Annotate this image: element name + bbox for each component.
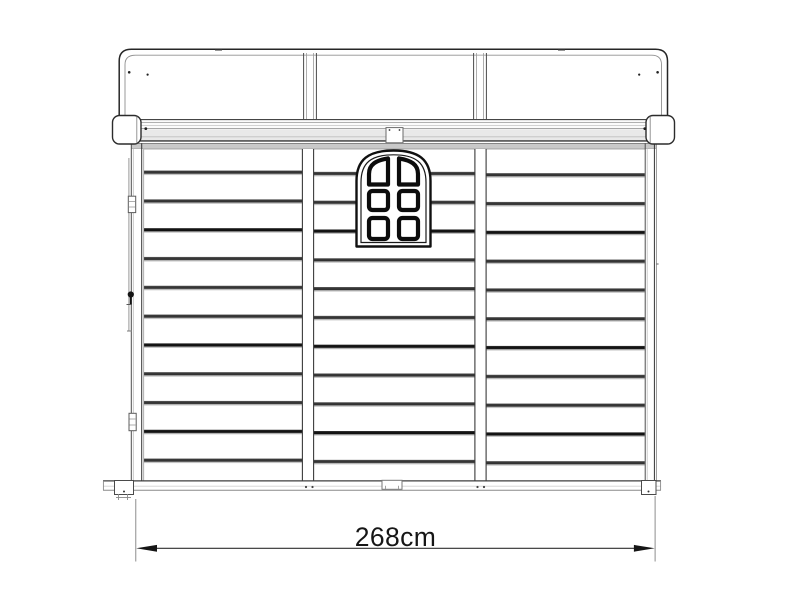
dimension-label: 268cm bbox=[355, 522, 437, 552]
window bbox=[357, 151, 431, 247]
dimension-arrow-right bbox=[634, 545, 655, 552]
latch-stem bbox=[130, 296, 132, 305]
foot-left-anchor-dot bbox=[123, 491, 125, 493]
foot-right-anchor-dot bbox=[648, 491, 650, 493]
cladding-line bbox=[314, 460, 476, 465]
cladding-line bbox=[314, 316, 476, 321]
foot-anchor-dot bbox=[305, 486, 307, 488]
cladding-line bbox=[486, 231, 645, 236]
gutter-rivet bbox=[643, 127, 646, 130]
window-pane-bottom-left bbox=[369, 218, 388, 239]
foot-anchor-dot bbox=[483, 486, 485, 488]
base-center-clip bbox=[382, 480, 402, 489]
cladding-line bbox=[486, 173, 645, 178]
cladding-line bbox=[486, 260, 645, 265]
cladding-line bbox=[144, 401, 303, 406]
foot-anchor-dot bbox=[311, 486, 313, 488]
wall-section-right bbox=[486, 173, 645, 466]
cladding-line bbox=[486, 317, 645, 322]
cladding-line bbox=[144, 171, 303, 176]
cladding-line bbox=[314, 258, 476, 263]
cladding-line bbox=[314, 345, 476, 350]
wall bbox=[127, 143, 659, 481]
roof-outer-outline bbox=[119, 49, 667, 119]
eave-shadow-band bbox=[132, 143, 657, 149]
cladding-line bbox=[314, 287, 476, 292]
batten-face bbox=[475, 149, 485, 481]
clip-dot bbox=[389, 129, 391, 131]
cladding-line bbox=[144, 315, 303, 320]
top-hinge bbox=[128, 196, 135, 212]
shed-elevation-diagram: 268cm bbox=[0, 0, 800, 600]
gutter bbox=[113, 116, 675, 145]
roof-mullion-right bbox=[474, 53, 487, 120]
cladding-line bbox=[486, 432, 645, 437]
roof-mullion-left bbox=[304, 53, 317, 120]
roof-rivet bbox=[656, 71, 659, 74]
cladding-line bbox=[144, 286, 303, 291]
hinge-plate bbox=[129, 413, 136, 430]
cladding-line bbox=[144, 430, 303, 435]
hinge-plate bbox=[128, 196, 135, 212]
bottom-hinge bbox=[129, 413, 136, 430]
gutter-center-clip bbox=[386, 128, 403, 143]
gutter-rivet bbox=[144, 127, 147, 130]
cladding-line bbox=[144, 459, 303, 464]
wall-batten-right bbox=[475, 149, 486, 481]
page: 268cm bbox=[0, 0, 800, 600]
window-pane-bottom-right bbox=[399, 218, 418, 239]
cladding-line bbox=[486, 288, 645, 293]
cladding-line bbox=[314, 402, 476, 407]
foot-anchor-dot bbox=[476, 486, 478, 488]
base bbox=[103, 480, 661, 500]
cladding-line bbox=[144, 343, 303, 348]
window-pane-mid-left bbox=[369, 191, 388, 210]
roof-rivet bbox=[147, 74, 149, 76]
roof-rivet bbox=[638, 74, 640, 76]
cladding-line bbox=[486, 404, 645, 409]
wall-section-left bbox=[144, 171, 303, 464]
cladding-line bbox=[314, 431, 476, 436]
cladding-line bbox=[144, 199, 303, 204]
clip-dot bbox=[399, 129, 401, 131]
roof-rivet bbox=[128, 71, 131, 74]
mullion-face bbox=[474, 56, 486, 120]
cladding-line bbox=[144, 257, 303, 262]
corner-post-right bbox=[645, 143, 658, 481]
window-pane-mid-right bbox=[399, 191, 418, 210]
cladding-line bbox=[144, 372, 303, 377]
cladding-line bbox=[486, 346, 645, 351]
dimension-arrow-left bbox=[136, 545, 157, 552]
cladding-line bbox=[314, 373, 476, 378]
roof bbox=[119, 49, 667, 119]
cladding-line bbox=[144, 228, 303, 233]
batten-face bbox=[303, 149, 313, 481]
mullion-face bbox=[304, 56, 316, 120]
cladding-line bbox=[486, 202, 645, 207]
cladding-line bbox=[486, 461, 645, 466]
dimension: 268cm bbox=[136, 496, 655, 562]
cladding-line bbox=[486, 375, 645, 380]
wall-batten-left bbox=[302, 149, 313, 481]
